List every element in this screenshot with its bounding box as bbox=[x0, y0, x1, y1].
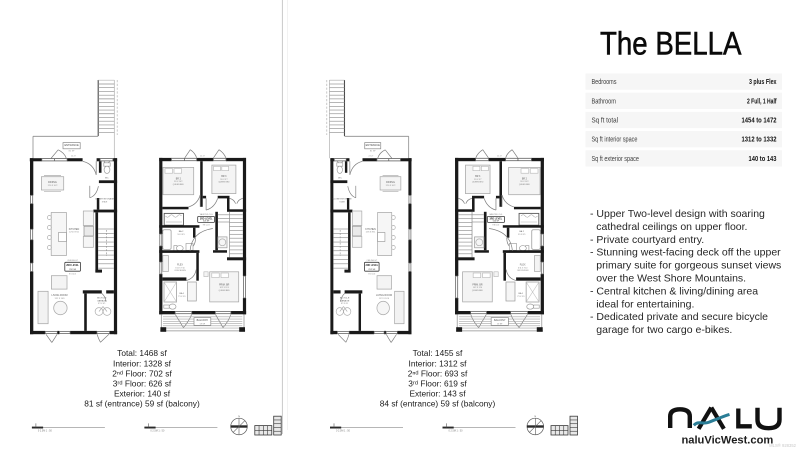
svg-text:3ʳᵈ Floor: 619 sf: 3ʳᵈ Floor: 619 sf bbox=[408, 379, 467, 389]
svg-text:STAIR: STAIR bbox=[339, 200, 345, 203]
svg-text:5'0 X 8'9: 5'0 X 8'9 bbox=[177, 234, 184, 236]
svg-text:- Dedicated private and secure: - Dedicated private and secure bicycle bbox=[590, 311, 768, 323]
svg-text:0 2.5M 1 : 50: 0 2.5M 1 : 50 bbox=[150, 430, 165, 433]
svg-text:13'2 X 10'6: 13'2 X 10'6 bbox=[55, 298, 66, 300]
svg-text:cathedral ceilings on upper fl: cathedral ceilings on upper floor. bbox=[596, 221, 747, 233]
svg-text:24'-8": 24'-8" bbox=[368, 156, 373, 158]
svg-text:KITCHEN: KITCHEN bbox=[69, 228, 80, 231]
svg-text:ENTRANCE: ENTRANCE bbox=[366, 143, 381, 147]
svg-text:CEILING HT: CEILING HT bbox=[67, 260, 78, 262]
svg-text:8'2 X 6'1: 8'2 X 6'1 bbox=[98, 303, 105, 305]
svg-text:12'6 X 8'11: 12'6 X 8'11 bbox=[69, 232, 80, 234]
svg-text:24'-8": 24'-8" bbox=[71, 156, 76, 158]
svg-text:84 sf (entrance) 59 sf (balcon: 84 sf (entrance) 59 sf (balcony) bbox=[380, 399, 496, 409]
svg-text:9'6 X 10'2: 9'6 X 10'2 bbox=[174, 181, 182, 183]
svg-text:9'8 CLG: 9'8 CLG bbox=[492, 224, 499, 226]
svg-text:0 2.5M 1 : 50: 0 2.5M 1 : 50 bbox=[449, 430, 464, 433]
svg-text:81 SF: 81 SF bbox=[370, 151, 376, 153]
svg-text:DINING: DINING bbox=[386, 181, 395, 184]
svg-text:Sq ft exterior space: Sq ft exterior space bbox=[592, 156, 640, 163]
svg-text:3 plus Flex: 3 plus Flex bbox=[749, 79, 777, 86]
svg-text:- Stunning west-facing deck of: - Stunning west-facing deck off the uppe… bbox=[590, 247, 781, 259]
svg-text:WC: WC bbox=[105, 177, 109, 179]
svg-text:BA 2: BA 2 bbox=[179, 230, 184, 233]
svg-text:BR 3: BR 3 bbox=[221, 176, 227, 178]
svg-text:QUEEN BED: QUEEN BED bbox=[173, 184, 185, 186]
svg-text:5'0 X 8'9: 5'0 X 8'9 bbox=[518, 234, 525, 236]
svg-text:VAULTED CLG: VAULTED CLG bbox=[200, 213, 213, 216]
svg-text:GARAGE: GARAGE bbox=[340, 299, 350, 302]
svg-text:BA 1: BA 1 bbox=[179, 292, 184, 295]
svg-text:BALCONY: BALCONY bbox=[494, 319, 506, 322]
svg-text:- Private courtyard entry.: - Private courtyard entry. bbox=[590, 234, 704, 246]
svg-text:DINING: DINING bbox=[48, 181, 57, 184]
svg-text:KITCHEN: KITCHEN bbox=[365, 228, 376, 231]
svg-text:Total: 1455 sf: Total: 1455 sf bbox=[413, 348, 463, 358]
svg-text:6'11 X 7'10: 6'11 X 7'10 bbox=[175, 267, 184, 269]
svg-text:BR 2: BR 2 bbox=[522, 178, 528, 180]
svg-text:The BELLA: The BELLA bbox=[600, 25, 742, 62]
svg-text:QUEEN BED: QUEEN BED bbox=[472, 290, 484, 292]
svg-text:QUEEN BED: QUEEN BED bbox=[519, 184, 531, 186]
svg-text:BICYCLE: BICYCLE bbox=[97, 298, 107, 300]
svg-text:Interior: 1312 sf: Interior: 1312 sf bbox=[409, 358, 468, 368]
svg-text:BR 2: BR 2 bbox=[176, 178, 182, 180]
svg-text:VAULTED CLG: VAULTED CLG bbox=[489, 213, 502, 216]
svg-text:2 Full, 1 Half: 2 Full, 1 Half bbox=[747, 98, 777, 105]
svg-text:BICYCLE: BICYCLE bbox=[340, 298, 350, 300]
svg-text:- Upper Two-level design with: - Upper Two-level design with soaring bbox=[590, 208, 765, 220]
svg-text:2ND LEVEL: 2ND LEVEL bbox=[365, 265, 378, 267]
svg-text:81 SF: 81 SF bbox=[69, 151, 75, 153]
svg-text:8'2 X 6'1: 8'2 X 6'1 bbox=[341, 303, 348, 305]
svg-text:QUEEN BED: QUEEN BED bbox=[472, 182, 484, 184]
svg-text:primary suite for gorgeous sun: primary suite for gorgeous sunset views bbox=[596, 260, 781, 272]
svg-text:CEILING HT: CEILING HT bbox=[366, 260, 377, 262]
svg-text:9'0 X 9'7: 9'0 X 9'7 bbox=[220, 179, 227, 181]
svg-text:1312 to 1332: 1312 to 1332 bbox=[742, 137, 777, 144]
svg-text:9'8 CLG: 9'8 CLG bbox=[203, 224, 210, 226]
svg-text:PRIM. BR: PRIM. BR bbox=[219, 284, 230, 286]
svg-text:140 to 143: 140 to 143 bbox=[749, 156, 777, 163]
svg-text:24'-8": 24'-8" bbox=[200, 155, 205, 157]
svg-text:1454 to 1472: 1454 to 1472 bbox=[742, 118, 777, 125]
svg-text:7'9 X 5'0: 7'9 X 5'0 bbox=[178, 296, 185, 298]
svg-text:9'6 X 10'2: 9'6 X 10'2 bbox=[520, 181, 528, 183]
svg-text:Bedrooms: Bedrooms bbox=[592, 79, 617, 86]
svg-text:WC: WC bbox=[338, 177, 342, 179]
svg-text:24'-8": 24'-8" bbox=[497, 155, 502, 157]
svg-text:Bathroom: Bathroom bbox=[592, 98, 617, 105]
svg-text:3ʳᵈ Floor: 626 sf: 3ʳᵈ Floor: 626 sf bbox=[113, 379, 172, 389]
svg-text:Sq ft interior space: Sq ft interior space bbox=[592, 137, 638, 144]
svg-text:LIVING ROOM: LIVING ROOM bbox=[376, 294, 392, 297]
svg-text:CLOSET/STORAGE: CLOSET/STORAGE bbox=[333, 198, 353, 201]
svg-text:BR 3: BR 3 bbox=[475, 176, 481, 178]
svg-text:0 2.5M 1 : 50: 0 2.5M 1 : 50 bbox=[336, 430, 351, 433]
svg-text:10'2 X 11'6: 10'2 X 11'6 bbox=[220, 287, 229, 289]
svg-text:9'0 X 9'7: 9'0 X 9'7 bbox=[474, 179, 481, 181]
svg-text:10'2 X 11'6: 10'2 X 11'6 bbox=[473, 287, 482, 289]
svg-text:- Central kitchen & living/din: - Central kitchen & living/dining area bbox=[590, 285, 758, 297]
svg-text:6'11 X 7'10: 6'11 X 7'10 bbox=[518, 267, 527, 269]
svg-text:Sq ft total: Sq ft total bbox=[592, 118, 619, 125]
svg-text:OFFICE/DEN: OFFICE/DEN bbox=[517, 270, 529, 272]
svg-text:naluVicWest.com: naluVicWest.com bbox=[681, 435, 773, 447]
svg-text:13'2 X 10'6: 13'2 X 10'6 bbox=[379, 298, 390, 300]
svg-text:garage for two cargo e-bikes.: garage for two cargo e-bikes. bbox=[596, 324, 732, 336]
svg-text:Interior: 1328 sf: Interior: 1328 sf bbox=[113, 358, 172, 368]
svg-text:ideal for entertaining.: ideal for entertaining. bbox=[596, 298, 694, 310]
svg-text:ENTRANCE: ENTRANCE bbox=[64, 143, 79, 147]
svg-text:11'0 X 10'2: 11'0 X 10'2 bbox=[386, 185, 397, 187]
svg-text:Exterior: 140 sf: Exterior: 140 sf bbox=[114, 389, 171, 399]
svg-text:11'0 X 10'2: 11'0 X 10'2 bbox=[48, 185, 59, 187]
svg-text:PRIM. BR: PRIM. BR bbox=[472, 284, 483, 286]
svg-text:QUEEN BED: QUEEN BED bbox=[218, 182, 230, 184]
svg-text:over the West Shore Mountains.: over the West Shore Mountains. bbox=[596, 273, 746, 285]
svg-text:LIVING ROOM: LIVING ROOM bbox=[52, 294, 68, 297]
svg-text:702 SF: 702 SF bbox=[69, 269, 77, 271]
svg-text:81 sf (entrance) 59 sf (balcon: 81 sf (entrance) 59 sf (balcony) bbox=[84, 399, 200, 409]
svg-text:STAIR: STAIR bbox=[102, 200, 108, 203]
svg-text:2ⁿᵈ Floor: 702 sf: 2ⁿᵈ Floor: 702 sf bbox=[112, 368, 172, 378]
svg-text:Total: 1468 sf: Total: 1468 sf bbox=[117, 348, 167, 358]
svg-text:OFFICE/DEN: OFFICE/DEN bbox=[174, 270, 186, 272]
svg-text:2ⁿᵈ Floor: 693 sf: 2ⁿᵈ Floor: 693 sf bbox=[408, 368, 468, 378]
svg-text:MLS® 928352: MLS® 928352 bbox=[769, 443, 797, 448]
svg-text:12'6 X 8'11: 12'6 X 8'11 bbox=[366, 232, 377, 234]
svg-text:GARAGE: GARAGE bbox=[97, 299, 107, 302]
svg-text:Exterior: 143 sf: Exterior: 143 sf bbox=[409, 389, 466, 399]
svg-text:626 SF: 626 SF bbox=[203, 221, 210, 223]
svg-text:0 2.5M 1 : 50: 0 2.5M 1 : 50 bbox=[38, 430, 53, 433]
svg-text:702 SF: 702 SF bbox=[368, 269, 376, 271]
svg-text:59 SF: 59 SF bbox=[200, 323, 206, 325]
svg-text:8'1 CLG: 8'1 CLG bbox=[69, 273, 76, 275]
svg-text:7'9 X 5'0: 7'9 X 5'0 bbox=[517, 296, 524, 298]
svg-text:FLEX: FLEX bbox=[520, 265, 526, 267]
svg-text:59 SF: 59 SF bbox=[497, 323, 503, 325]
svg-text:FLEX: FLEX bbox=[177, 265, 183, 267]
svg-text:CLOSET/STORAGE: CLOSET/STORAGE bbox=[95, 198, 115, 201]
svg-text:BA 2: BA 2 bbox=[519, 230, 524, 233]
svg-text:BA 1: BA 1 bbox=[519, 292, 524, 295]
svg-text:8'1 CLG: 8'1 CLG bbox=[368, 273, 375, 275]
svg-text:2ND LEVEL: 2ND LEVEL bbox=[66, 265, 79, 267]
svg-text:BALCONY: BALCONY bbox=[197, 319, 209, 322]
svg-text:626 SF: 626 SF bbox=[493, 221, 500, 223]
svg-text:QUEEN BED: QUEEN BED bbox=[219, 290, 231, 292]
